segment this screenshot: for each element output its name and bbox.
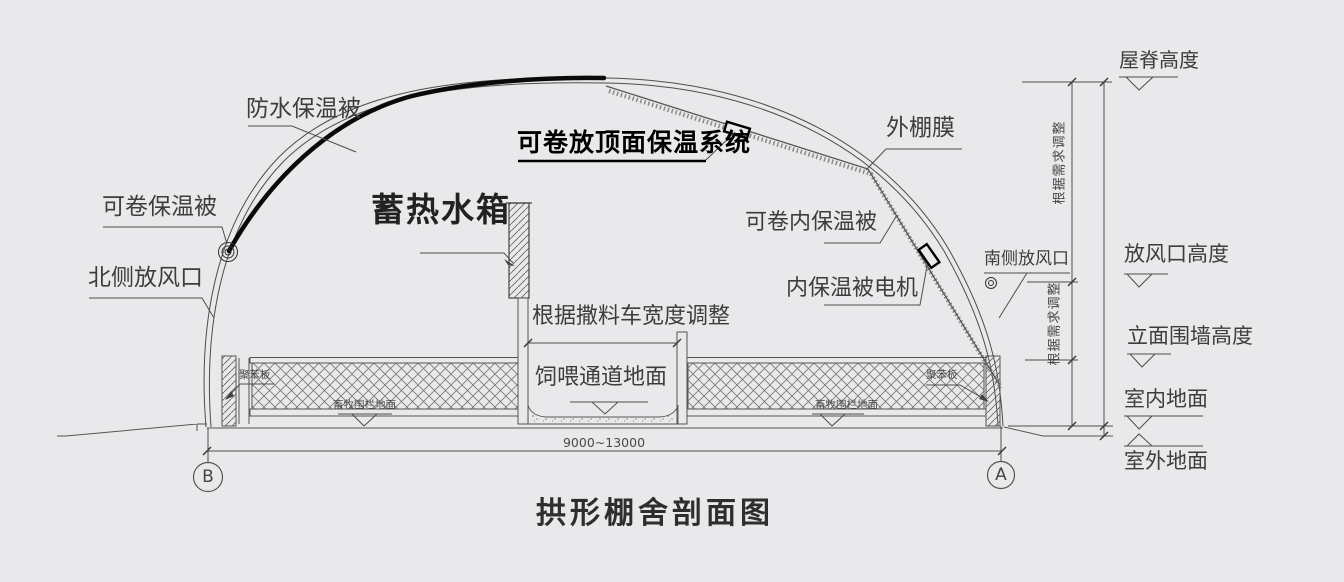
label-feeding-passage-floor: 饲喂通道地面 [535,366,667,389]
label-water-tank: 蓄热水箱 [371,193,511,228]
label-rollable-inner-blanket: 可卷内保温被 [745,211,877,234]
label-outdoor-floor: 室外地面 [1124,450,1208,472]
label-wall-material-left: 聚苯板 [239,370,271,381]
label-adjust-note-lower: 根据需求调整 [1044,279,1063,369]
rolled-film-coil-south [986,278,997,289]
label-adjust-note-upper: 根据需求调整 [1049,118,1068,208]
label-feed-truck-width-note: 根据撒料车宽度调整 [532,305,730,328]
label-rollable-blanket: 可卷保温被 [102,195,217,219]
label-livestock-floor-right: 畜牧围栏地面 [815,400,878,411]
label-indoor-floor: 室内地面 [1124,388,1208,410]
axis-bubble-a: A [991,465,1011,485]
label-facade-wall-height: 立面围墙高度 [1127,325,1253,347]
label-roof-insulation-system: 可卷放顶面保温系统 [517,130,751,156]
left-wall [222,356,520,426]
drawing-title: 拱形棚舍剖面图 [536,488,774,532]
label-livestock-floor-left: 畜牧围栏地面 [333,400,396,411]
label-outer-film: 外棚膜 [886,116,955,140]
label-inner-blanket-motor: 内保温被电机 [786,277,918,300]
span-dimension-value: 9000~13000 [558,435,650,450]
label-ridge-height: 屋脊高度 [1119,50,1199,71]
label-waterproof-blanket: 防水保温被 [246,97,361,121]
inner-blanket-motor-symbol [919,244,940,268]
label-vent-height: 放风口高度 [1124,243,1229,265]
feeding-passage-floor-section [528,405,678,424]
label-wall-material-right: 聚苯板 [926,370,958,381]
label-north-vent: 北侧放风口 [88,266,203,290]
axis-bubble-b: B [198,467,218,487]
label-south-vent: 南侧放风口 [984,251,1069,269]
axis-bubbles [194,462,1015,492]
arched-shed-section-drawing: 防水保温被 可卷保温被 北侧放风口 蓄热水箱 可卷放顶面保温系统 外棚膜 可卷内… [0,0,1344,582]
